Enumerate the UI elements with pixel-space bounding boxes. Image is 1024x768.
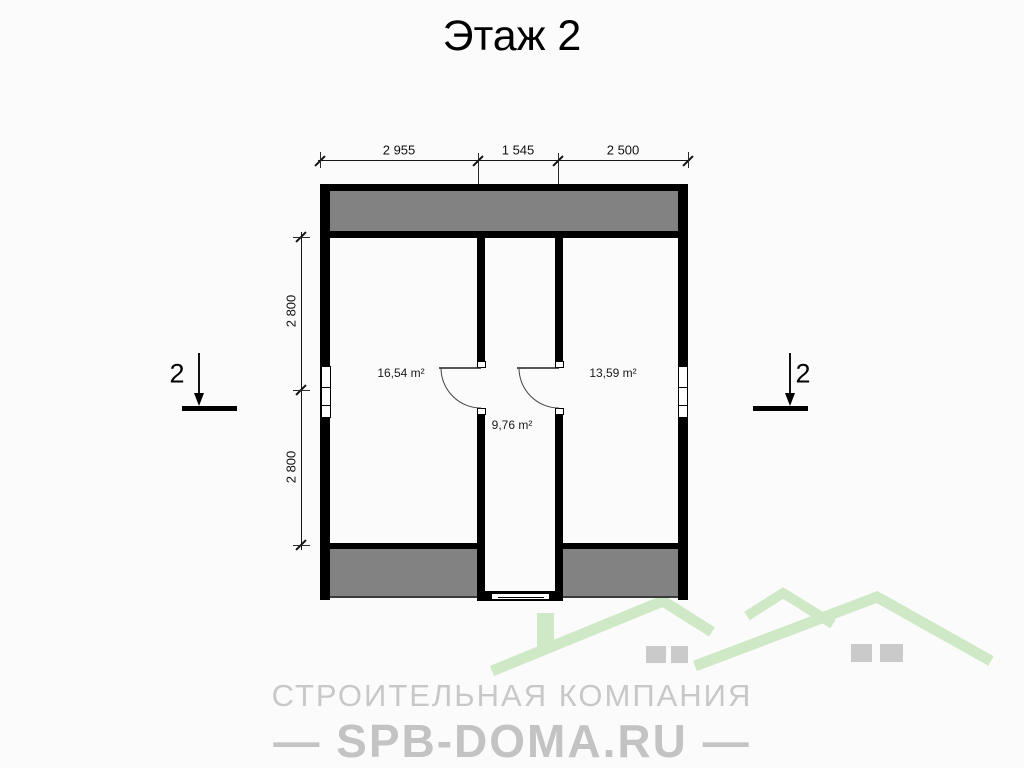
floor-plan-page: Этаж 2 СТРОИТЕЛЬНАЯ КОМПАНИЯ — SPB-DOMA.… bbox=[0, 0, 1024, 768]
roof-zone-bottom-left bbox=[330, 549, 477, 598]
section-mark-bar-right bbox=[753, 406, 808, 411]
left-wall-window bbox=[321, 366, 331, 418]
section-mark-label-right: 2 bbox=[795, 359, 810, 390]
section-arrow-down-icon bbox=[194, 393, 204, 406]
door-swing-symbols bbox=[0, 0, 1024, 768]
right-wall-window bbox=[678, 366, 688, 418]
room-area-label: 13,59 m² bbox=[589, 366, 636, 380]
section-mark-line-right bbox=[789, 353, 791, 397]
section-arrow-down-icon bbox=[785, 393, 795, 406]
hall-bottom-window bbox=[491, 593, 550, 600]
section-mark-bar-left bbox=[182, 406, 237, 411]
roof-zone-bottom-right bbox=[563, 549, 678, 598]
room-area-label: 16,54 m² bbox=[377, 366, 424, 380]
section-mark-label-left: 2 bbox=[169, 359, 184, 390]
section-mark-line-left bbox=[198, 353, 200, 397]
room-area-label: 9,76 m² bbox=[492, 418, 533, 432]
